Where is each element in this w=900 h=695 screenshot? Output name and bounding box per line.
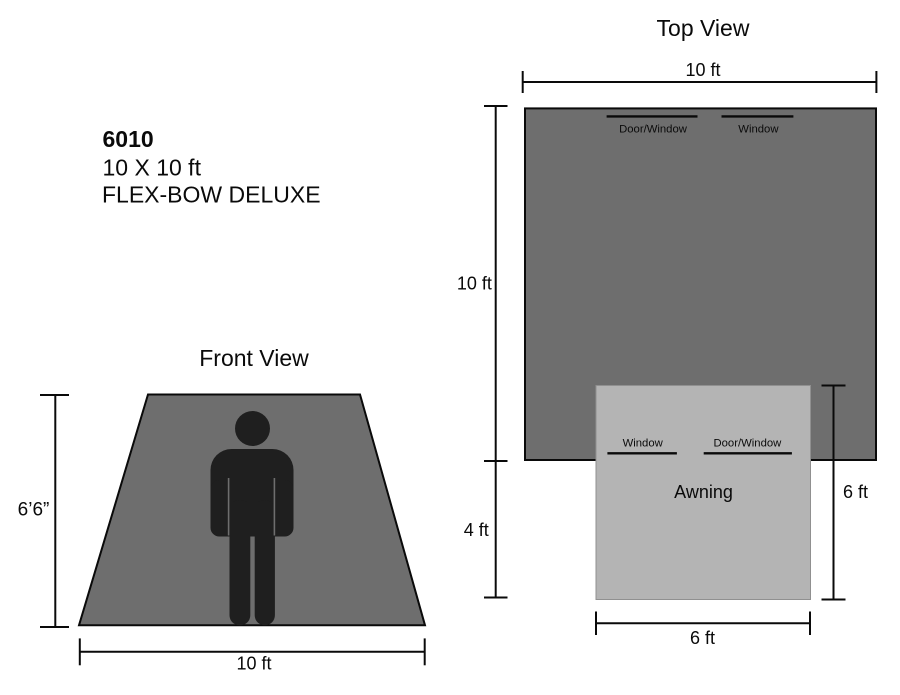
svg-text:Door/Window: Door/Window: [619, 124, 688, 136]
svg-text:Top View: Top View: [657, 15, 750, 41]
svg-text:6 ft: 6 ft: [690, 628, 715, 648]
svg-text:4 ft: 4 ft: [464, 520, 489, 540]
svg-text:10 X 10 ft: 10 X 10 ft: [103, 155, 202, 181]
svg-text:Front View: Front View: [199, 345, 309, 371]
svg-text:Door/Window: Door/Window: [713, 438, 782, 450]
svg-text:6 ft: 6 ft: [843, 482, 868, 502]
svg-text:10 ft: 10 ft: [457, 274, 492, 294]
svg-text:10 ft: 10 ft: [685, 60, 720, 80]
svg-text:FLEX-BOW DELUXE: FLEX-BOW DELUXE: [102, 182, 321, 208]
svg-text:Window: Window: [738, 124, 779, 136]
svg-text:Window: Window: [623, 438, 664, 450]
svg-text:6010: 6010: [103, 126, 154, 152]
svg-text:10 ft: 10 ft: [236, 654, 271, 674]
svg-text:Awning: Awning: [674, 482, 733, 502]
svg-text:6’6”: 6’6”: [18, 500, 50, 521]
